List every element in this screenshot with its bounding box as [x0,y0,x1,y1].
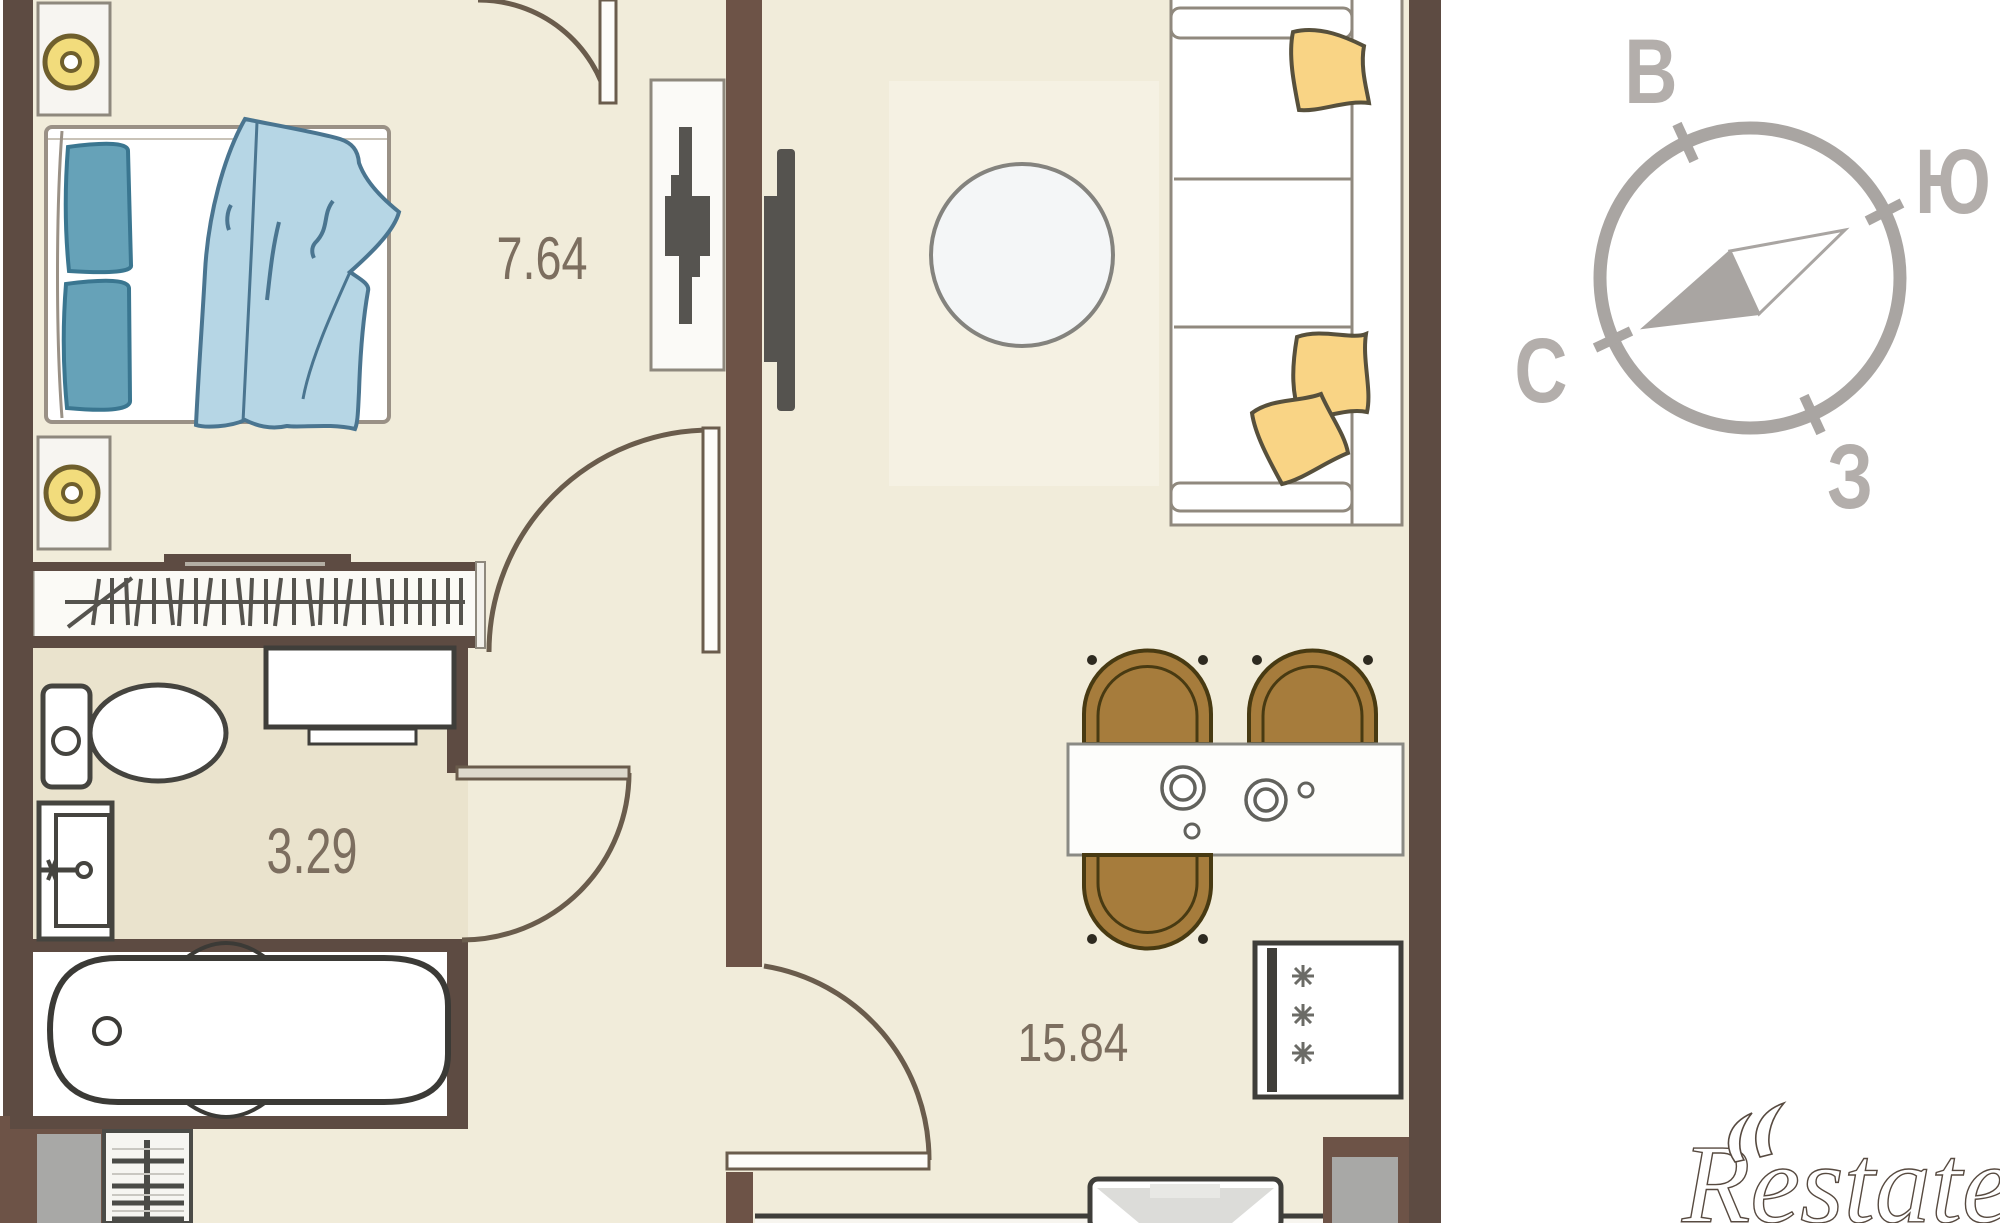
svg-text:С: С [1514,319,1567,422]
svg-text:3.29: 3.29 [267,815,358,887]
svg-text:7.64: 7.64 [496,225,587,292]
svg-text:В: В [1624,20,1677,123]
svg-text:15.84: 15.84 [1018,1013,1129,1073]
svg-text:Ю: Ю [1915,130,1991,233]
svg-text:З: З [1827,425,1873,528]
